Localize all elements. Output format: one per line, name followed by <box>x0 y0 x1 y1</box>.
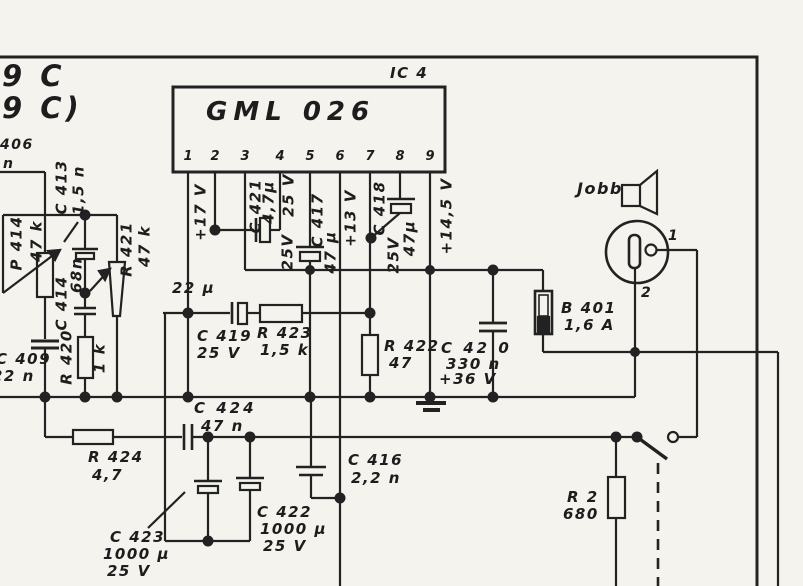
partial-component-ref: 406 <box>0 138 34 152</box>
label-c418-voltage: 25V <box>387 237 402 274</box>
din-connector-symbol <box>606 221 697 437</box>
label-p414-ref: P 414 <box>10 215 25 270</box>
label-r422-value: 47 <box>389 356 413 371</box>
label-c421-voltage: 25 V <box>282 173 297 217</box>
label-r421-ref: R 421 <box>120 221 135 277</box>
ic4-ref: IC 4 <box>390 66 428 81</box>
label-r424-value: 4,7 <box>92 468 123 483</box>
frame-border <box>0 57 757 586</box>
c416-capacitor-symbol <box>296 397 340 498</box>
label-rail-13v: +13 V <box>344 189 359 247</box>
label-c418-value: 47µ <box>403 220 418 256</box>
label-connector-pin2: 2 <box>641 286 652 300</box>
ic4-pin-7: 7 <box>363 150 377 163</box>
label-c413-value: 1,5 n <box>72 165 87 215</box>
label-c417-value: 47 µ <box>324 230 339 273</box>
label-r421-value: 47 k <box>138 225 153 267</box>
label-rail-145v: +14,5 V <box>440 178 455 255</box>
ic4-pin-5: 5 <box>303 150 317 163</box>
label-c422-value: 1000 µ <box>260 522 327 537</box>
label-c422-voltage: 25 V <box>263 539 307 554</box>
label-b401-value: 1,6 A <box>564 318 615 333</box>
label-r2-ref: R 2 <box>567 490 599 505</box>
label-r423-ref: R 423 <box>257 326 313 341</box>
label-r420-value: 1 k <box>93 343 108 373</box>
label-r424-ref: R 424 <box>88 450 144 465</box>
label-c423-value: 1000 µ <box>103 547 170 562</box>
label-b401-ref: B 401 <box>561 301 616 316</box>
label-connector-pin1: 1 <box>668 229 679 243</box>
schematic-page: 9 C 9 C) 406 n IC 4 GML 026 1 2 3 4 5 6 … <box>0 0 803 586</box>
switch-symbol <box>637 432 678 459</box>
partial-text-line2: 9 C) <box>2 94 83 123</box>
label-c423-ref: C 423 <box>110 530 165 545</box>
ic4-pin-3: 3 <box>238 150 252 163</box>
label-c419-ref: C 419 <box>197 329 252 344</box>
label-c419-value: 22 µ <box>172 281 215 296</box>
label-r423-value: 1,5 k <box>260 343 309 358</box>
label-c422-ref: C 422 <box>257 505 312 520</box>
label-c409-ref: C 409 <box>0 352 51 367</box>
label-c420-voltage: +36 V <box>439 372 497 387</box>
ic4-pin-6: 6 <box>333 150 347 163</box>
label-speaker-jobb: Jobb <box>577 181 623 197</box>
label-c420-ref: C 42 0 <box>441 341 512 356</box>
label-c424-ref: C 424 <box>194 401 257 416</box>
label-p414-value: 47 k <box>30 220 45 262</box>
label-rail-17v: +17 V <box>194 183 209 241</box>
b401-fuse-symbol <box>535 291 778 586</box>
r422-resistor-symbol <box>362 313 378 397</box>
label-c416-value: 2,2 n <box>351 471 401 486</box>
ic4-pin-2: 2 <box>208 150 222 163</box>
c423-capacitor-symbol <box>148 437 250 541</box>
label-c419-voltage: 25 V <box>197 346 241 361</box>
label-c413-ref: C 413 <box>55 159 70 214</box>
label-c423-voltage: 25 V <box>107 564 151 579</box>
partial-component-value: n <box>3 157 14 171</box>
ic4-pin-1: 1 <box>181 150 195 163</box>
speaker-icon <box>622 171 657 214</box>
label-c414-value: 68n <box>70 257 85 293</box>
label-c424-value: 47 n <box>201 419 244 434</box>
label-c421-value: 4,7µ <box>262 180 277 224</box>
label-r422-ref: R 422 <box>384 339 440 354</box>
label-c416-ref: C 416 <box>348 453 403 468</box>
label-r420-ref: R 420 <box>60 329 75 385</box>
ic4-pin-8: 8 <box>393 150 407 163</box>
label-r2-value: 680 <box>563 507 599 522</box>
ic4-name: GML 026 <box>206 99 375 125</box>
label-c417-voltage: 25V <box>281 234 296 271</box>
ic4-pin-9: 9 <box>423 150 437 163</box>
label-c409-value: 22 n <box>0 369 35 384</box>
partial-text-line1: 9 C <box>2 62 66 91</box>
ic4-pin-4: 4 <box>273 150 287 163</box>
label-c414-ref: C 414 <box>55 275 70 330</box>
r2-resistor-symbol <box>608 437 625 586</box>
label-c418-ref: C 418 <box>373 180 388 235</box>
schematic-canvas <box>0 0 803 586</box>
